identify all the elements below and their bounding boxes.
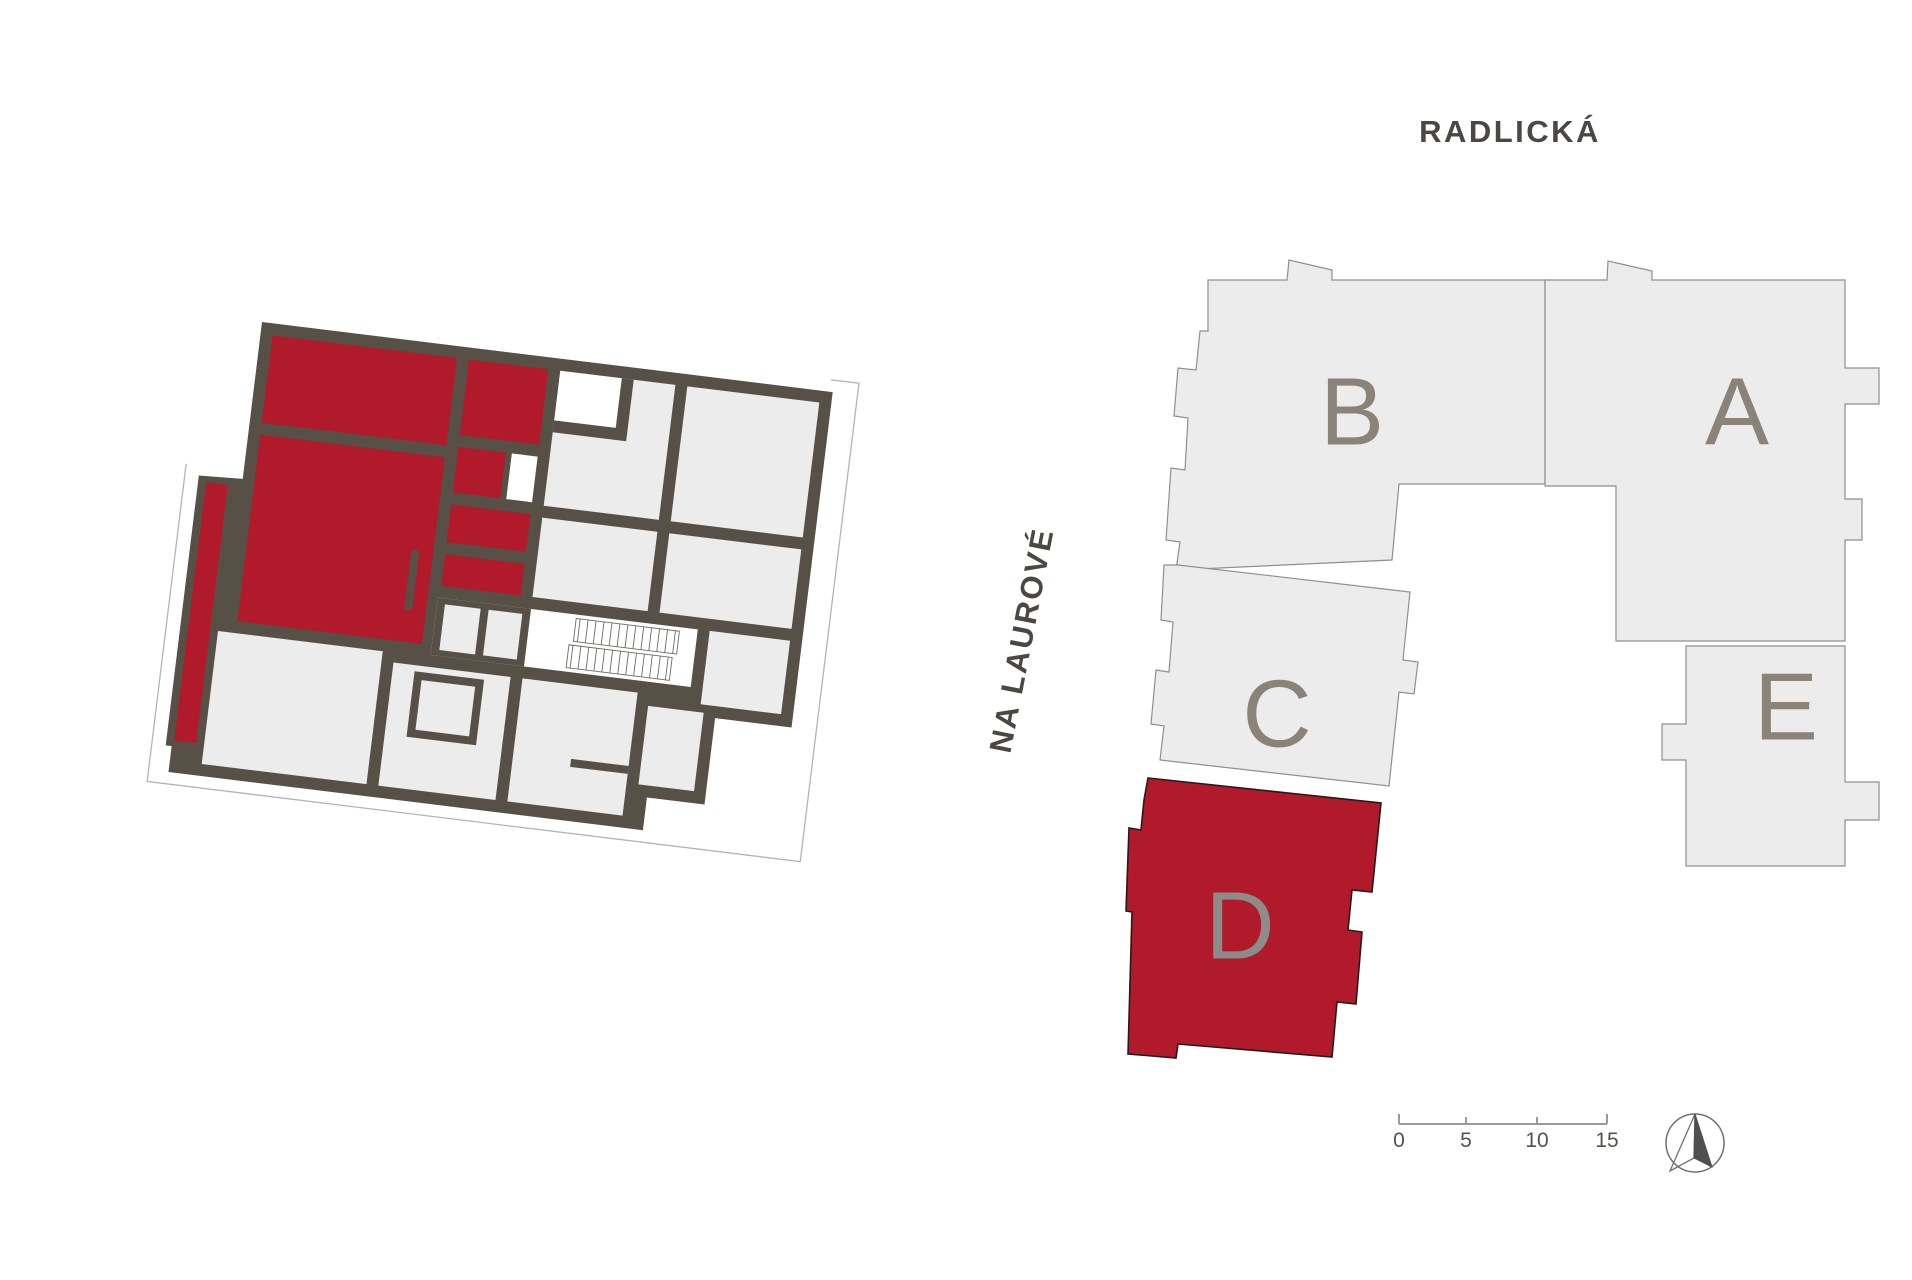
room: [638, 706, 703, 791]
room: [415, 680, 475, 736]
building-b-label: B: [1320, 359, 1384, 466]
building-a-label: A: [1705, 359, 1769, 466]
scale-tick-15: 15: [1595, 1129, 1618, 1152]
room: [701, 631, 790, 714]
scale-bar-line: [1399, 1114, 1607, 1124]
scale-tick-10: 10: [1525, 1129, 1548, 1152]
apartment-room[interactable]: [460, 360, 549, 445]
plan-canvas: RADLICKÁ NA LAUROVÉ A B C D E 0 5 10 15: [0, 0, 1912, 1280]
building-c-label: C: [1242, 661, 1311, 768]
room: [202, 631, 383, 784]
room: [660, 533, 802, 629]
north-arrow-icon: [1666, 1114, 1724, 1172]
room: [671, 386, 820, 537]
building-e-label: E: [1754, 654, 1818, 761]
scale-tick-5: 5: [1460, 1129, 1472, 1152]
apartment-room[interactable]: [237, 435, 445, 644]
street-label-radlicka: RADLICKÁ: [1419, 114, 1601, 149]
apartment-room[interactable]: [453, 447, 506, 499]
bathroom-cell: [506, 453, 537, 502]
utility-cell: [439, 604, 480, 654]
building-d-label: D: [1205, 873, 1274, 980]
room: [533, 518, 658, 612]
room: [507, 678, 637, 815]
street-label-na-laurove: NA LAUROVÉ: [983, 524, 1061, 755]
page: RADLICKÁ NA LAUROVÉ A B C D E 0 5 10 15: [0, 0, 1912, 1280]
detail-floor-plan: [147, 303, 859, 862]
entry-cell: [554, 371, 622, 428]
scale-bar: 0 5 10 15: [1393, 1114, 1619, 1152]
scale-tick-0: 0: [1393, 1129, 1405, 1152]
utility-cell: [483, 610, 522, 660]
